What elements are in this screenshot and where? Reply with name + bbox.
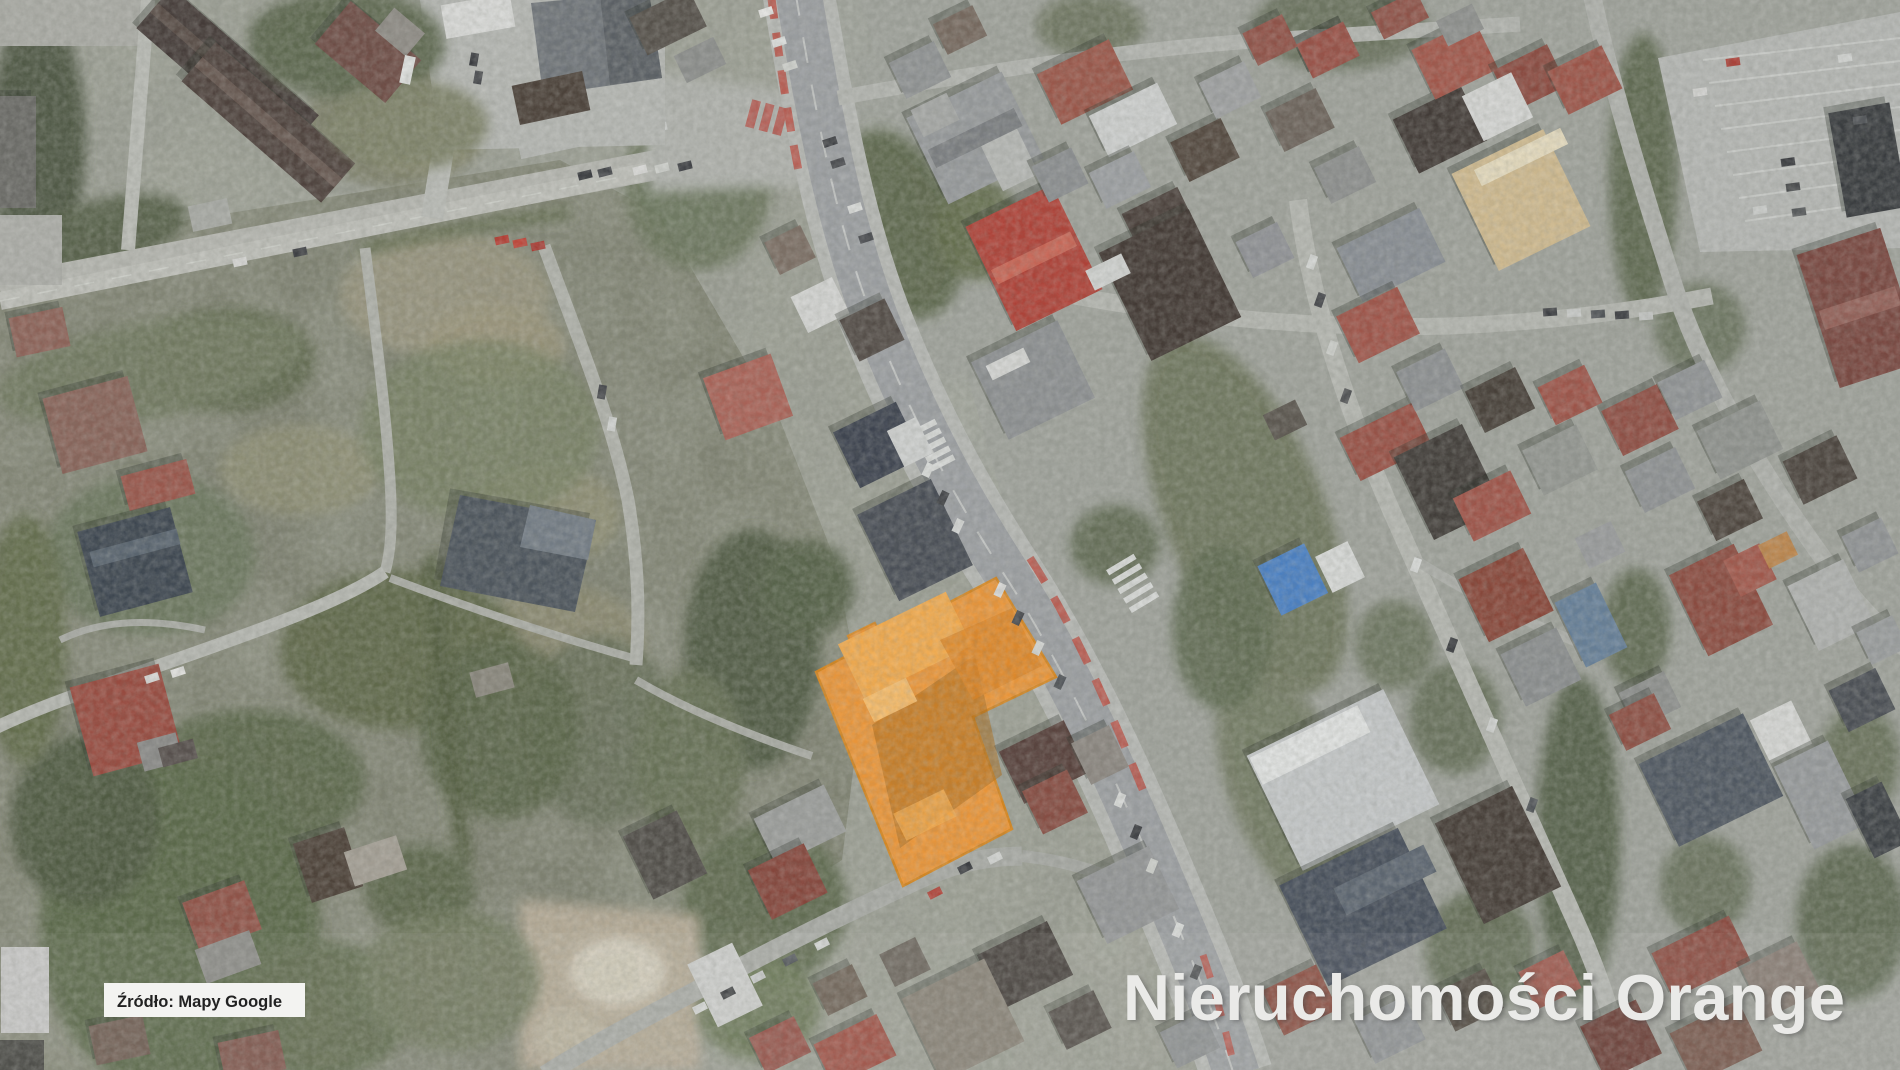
- svg-text:Źródło: Mapy Google: Źródło: Mapy Google: [117, 992, 282, 1011]
- svg-text:Nieruchomości Orange: Nieruchomości Orange: [1123, 961, 1845, 1034]
